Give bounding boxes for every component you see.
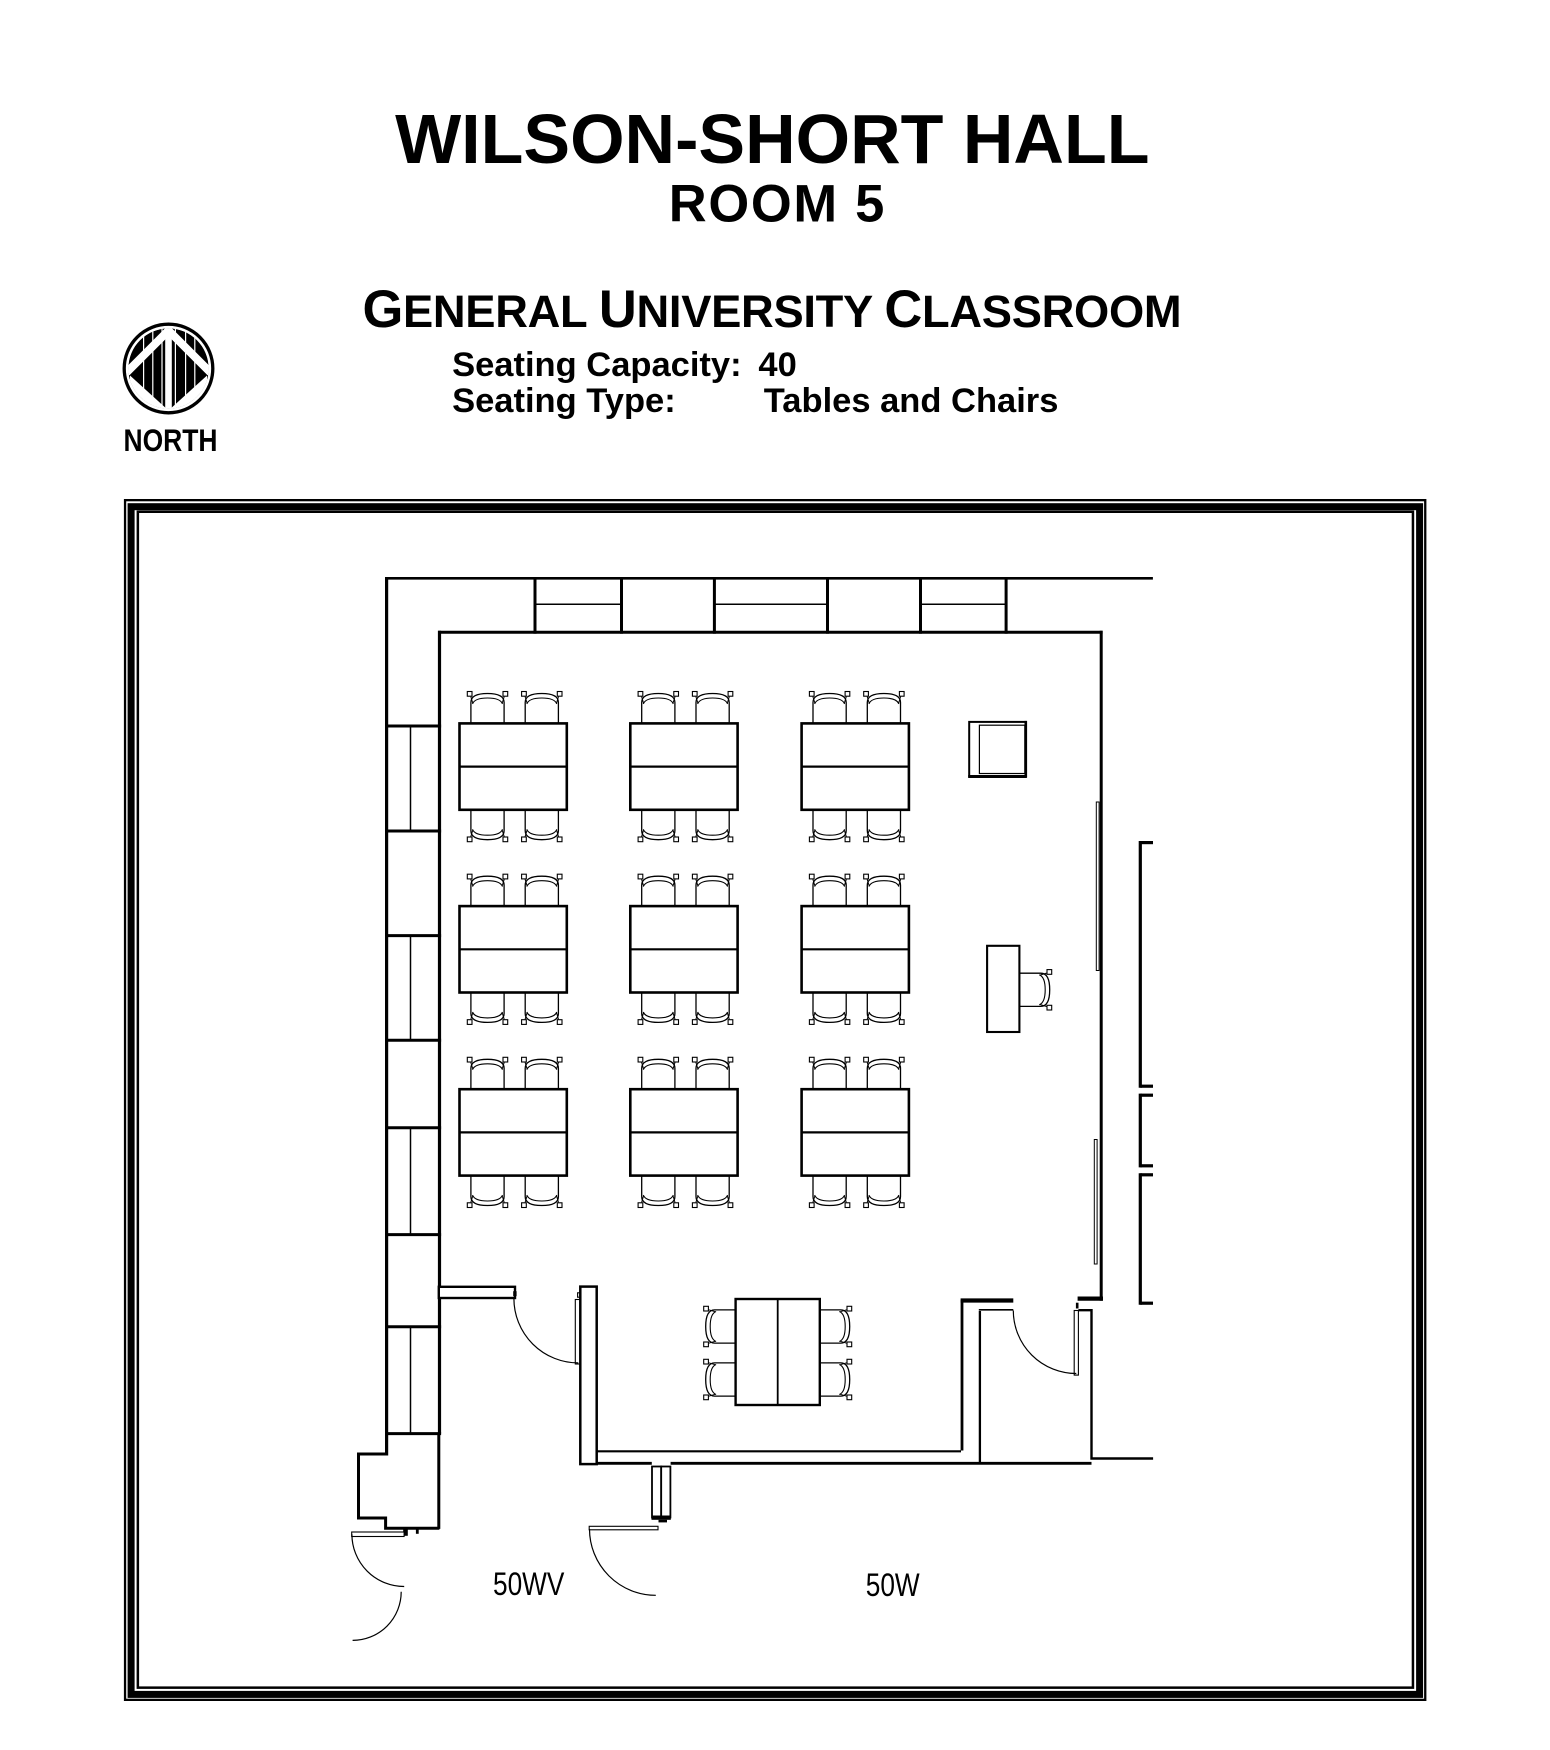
svg-text:50WV: 50WV: [493, 1568, 565, 1603]
svg-text:NORTH: NORTH: [123, 424, 217, 459]
svg-text:50W: 50W: [866, 1569, 920, 1604]
svg-text:Tables and Chairs: Tables and Chairs: [764, 382, 1059, 420]
svg-text:WILSON-SHORT HALL: WILSON-SHORT HALL: [395, 100, 1149, 178]
svg-text:GENERAL UNIVERSITY CLASSROOM: GENERAL UNIVERSITY CLASSROOM: [362, 280, 1181, 339]
svg-text:40: 40: [758, 346, 796, 384]
svg-text:ROOM 5: ROOM 5: [669, 175, 886, 234]
svg-text:Seating Capacity:: Seating Capacity:: [452, 346, 741, 384]
svg-text:Seating Type:: Seating Type:: [452, 382, 676, 420]
